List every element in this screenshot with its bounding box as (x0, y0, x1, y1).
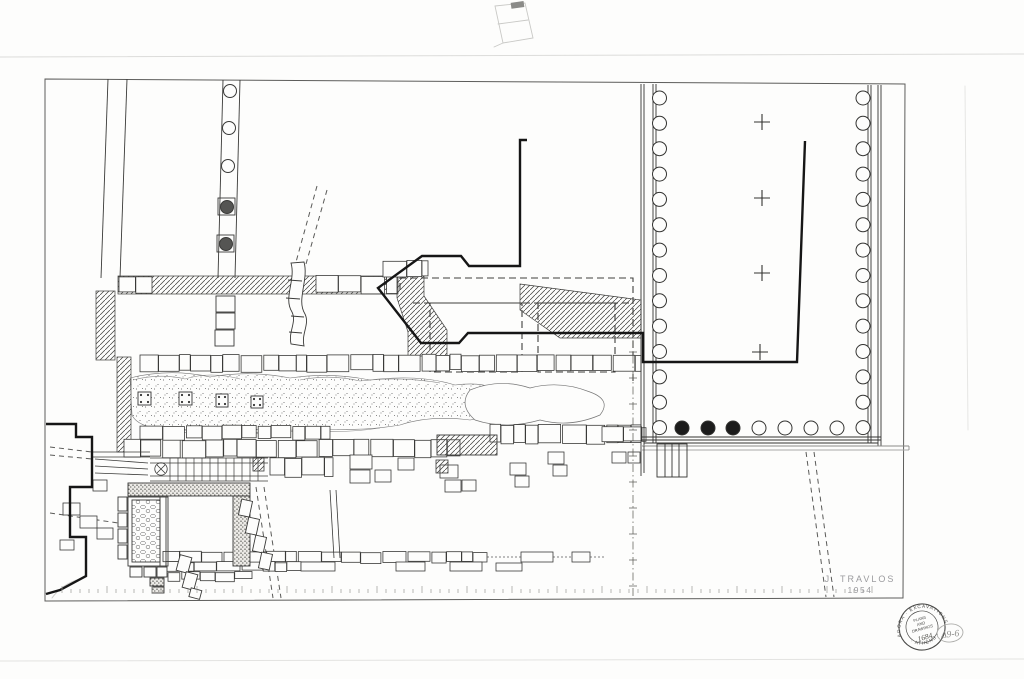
column-circle (653, 116, 667, 130)
stone-block (296, 355, 306, 371)
stone-block (450, 354, 461, 369)
stone-block (202, 426, 222, 440)
stone-block (296, 441, 317, 457)
stone-block (394, 440, 415, 457)
cross-marker (754, 190, 770, 206)
stone-block (327, 355, 349, 372)
column-circle (653, 345, 667, 359)
column-circle-filled (701, 421, 715, 435)
pebble-room-complex (118, 483, 273, 599)
stone-block (275, 563, 286, 572)
cross-marker (754, 114, 770, 130)
column-circle (653, 218, 667, 232)
stone-block (342, 552, 361, 562)
stone-block (224, 439, 237, 456)
stone-block (241, 356, 262, 373)
temple-columns (653, 91, 871, 435)
stone-block (141, 440, 161, 456)
stone-block (163, 427, 185, 441)
stone-block (302, 457, 324, 475)
pencil-sketch (494, 3, 533, 47)
stone-block (339, 276, 361, 292)
stone-block (602, 427, 623, 442)
south-wall-hatched-block (437, 435, 497, 455)
column-circle (653, 269, 667, 283)
cross-marker (752, 344, 768, 360)
stone-block (305, 426, 320, 439)
column-circle (856, 421, 870, 435)
stone-block (285, 459, 302, 478)
column-circle-filled (221, 201, 234, 214)
stone-block (163, 440, 181, 458)
cross-marker (754, 265, 770, 281)
stone-block (237, 440, 256, 457)
column-circle (653, 142, 667, 156)
stone-block (194, 562, 216, 571)
survey-crosses (752, 114, 770, 360)
stone-block (593, 355, 611, 370)
column-circle (653, 294, 667, 308)
plan-sheet: J. TRAVLOS 1954 AGORA · EXCAVATIONS · AT… (0, 0, 1024, 679)
column-circle (224, 85, 237, 98)
stone-block (211, 356, 223, 373)
stone-block (186, 426, 202, 438)
survey-line (629, 340, 637, 598)
stone-block (496, 355, 517, 372)
column-circle (653, 395, 667, 409)
stone-block (258, 426, 271, 438)
stone-block (556, 355, 571, 371)
column-circle (752, 421, 766, 435)
column-circle (856, 319, 870, 333)
stone-block (538, 424, 560, 442)
column-circle-filled (675, 421, 689, 435)
column-circle (804, 421, 818, 435)
stone-block (517, 355, 537, 372)
stone-block (479, 355, 494, 371)
pencil-note-text: Δ9-6 (940, 629, 960, 641)
column-circle (653, 421, 667, 435)
stone-block (571, 355, 593, 370)
column-circle (653, 319, 667, 333)
boundary-line (101, 79, 108, 278)
stone-block (526, 425, 538, 444)
stone-block (461, 356, 479, 372)
column-circle (223, 122, 236, 135)
stone-block (384, 355, 399, 372)
stone-block (501, 425, 514, 443)
stone-block (415, 440, 431, 457)
stone-block (286, 551, 297, 561)
stone-block (298, 552, 321, 562)
stone-block (383, 552, 406, 563)
stone-block (191, 355, 211, 371)
stone-block (278, 440, 296, 457)
agora-stamp: AGORA · EXCAVATIONS · ATHENS · PLANS AND… (890, 597, 955, 656)
column-circle (856, 243, 870, 257)
stone-block (537, 355, 554, 371)
excavation-plan-drawing: J. TRAVLOS 1954 AGORA · EXCAVATIONS · AT… (0, 0, 1024, 679)
column-circle (856, 395, 870, 409)
stone-block (563, 425, 587, 444)
column-circle (653, 370, 667, 384)
signature-name: J. TRAVLOS (825, 574, 896, 584)
temple-plan (641, 84, 909, 477)
column-circle (856, 294, 870, 308)
column-circle-filled (220, 238, 233, 251)
column-circle (222, 160, 235, 173)
drawing-frame-border (45, 79, 905, 601)
stone-block (371, 439, 393, 456)
stone-block (399, 355, 420, 371)
stone-block (322, 552, 341, 561)
stone-block (136, 277, 152, 293)
stone-block (321, 426, 330, 439)
stone-block (436, 356, 449, 371)
column-circle (653, 167, 667, 181)
stone-block (223, 355, 239, 372)
stone-block (222, 425, 241, 439)
stone-block (235, 572, 252, 579)
stippled-bedrock (130, 373, 604, 434)
stone-block (163, 551, 179, 561)
signature-year: 1954 (848, 585, 873, 595)
stone-block (256, 441, 276, 458)
stone-block (182, 441, 205, 458)
stone-block (215, 573, 234, 582)
stone-block (514, 425, 525, 443)
stone-block (119, 277, 135, 292)
column-circle (856, 192, 870, 206)
stone-block (140, 355, 158, 372)
stone-block (293, 427, 305, 441)
column-circle (856, 218, 870, 232)
signature-block: J. TRAVLOS 1954 (825, 574, 896, 595)
stone-block (168, 573, 180, 582)
column-circle (856, 116, 870, 130)
stone-block (319, 440, 332, 457)
stone-block (624, 427, 642, 441)
stone-block (180, 355, 191, 371)
column-circle (653, 192, 667, 206)
stone-block (159, 355, 180, 371)
stone-block (354, 439, 369, 457)
pier-stack (215, 296, 235, 346)
column-circle (778, 421, 792, 435)
stone-block (635, 356, 641, 372)
northwest-colonnade (101, 79, 240, 278)
stone-block (307, 356, 327, 373)
stone-block (462, 552, 473, 562)
stone-block (422, 354, 436, 371)
stone-block (124, 439, 140, 457)
stone-block (373, 354, 383, 371)
stone-block (473, 553, 487, 562)
curved-wall (286, 262, 307, 346)
stone-block (279, 355, 296, 371)
stone-block (432, 552, 446, 563)
column-circle (856, 167, 870, 181)
column-circle-filled (726, 421, 740, 435)
stone-block (264, 355, 279, 370)
column-circle (856, 345, 870, 359)
column-circle (830, 421, 844, 435)
column-circle (653, 91, 667, 105)
column-circle (856, 91, 870, 105)
column-circle (856, 142, 870, 156)
stone-block (447, 552, 462, 562)
stone-block (287, 562, 301, 571)
stone-block (271, 425, 291, 437)
stone-block (333, 440, 354, 456)
column-circle (856, 269, 870, 283)
stone-block (325, 458, 333, 477)
stone-block (422, 261, 428, 276)
stone-block (242, 426, 256, 438)
stone-block (140, 426, 163, 439)
pencil-mark (511, 1, 525, 9)
boundary-line (120, 79, 127, 278)
stone-block (613, 355, 635, 371)
bedrock-outcrop (465, 383, 604, 425)
stone-block (270, 458, 285, 475)
stone-block (316, 275, 338, 292)
stone-block (206, 440, 223, 457)
column-circle (856, 370, 870, 384)
column-circle (653, 243, 667, 257)
stone-block (361, 553, 381, 564)
stone-block (351, 355, 373, 370)
stone-block (408, 552, 430, 562)
stone-block (202, 552, 222, 562)
stone-block (200, 572, 215, 581)
